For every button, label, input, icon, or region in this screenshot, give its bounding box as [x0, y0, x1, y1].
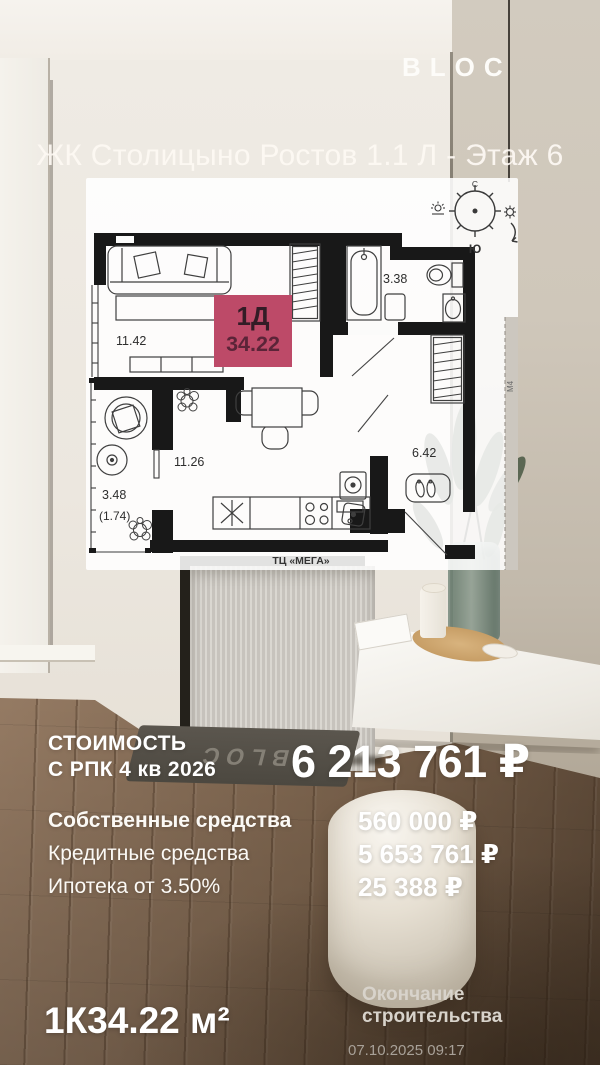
promo-story-canvas: BLOC	[0, 0, 600, 1065]
candle	[420, 586, 446, 638]
finance-row-label: Собственные средства	[48, 809, 291, 833]
floor-plan-drawing: 1Д 34.22 11.42 3.38 11.26 6.42 3.48 (1.7…	[86, 178, 518, 570]
living-area-label: 11.42	[116, 334, 146, 348]
finance-row-label: Кредитные средства	[48, 842, 249, 866]
section-label: М4	[506, 380, 515, 392]
unit-area-text: 34.22 м²	[87, 1000, 230, 1041]
unit-area-label: 34.22	[226, 332, 280, 356]
finance-row-value: 25 388 ₽	[358, 872, 463, 903]
finance-row-own-funds: Собственные средства 560 000 ₽	[48, 806, 568, 838]
hallway-area-label: 6.42	[412, 446, 436, 460]
balcony-area-label: 3.48	[102, 488, 126, 502]
bloc-logo: BLOC	[402, 52, 572, 83]
unit-type-label: 1Д	[237, 301, 270, 331]
bathroom-door-opening	[348, 322, 398, 335]
balcony-reduced-label: (1.74)	[99, 509, 130, 523]
unit-summary: 1К34.22 м²	[44, 1000, 230, 1042]
finance-row-value: 560 000 ₽	[358, 806, 477, 837]
finance-row-credit-funds: Кредитные средства 5 653 761 ₽	[48, 839, 568, 871]
finance-row-value: 5 653 761 ₽	[358, 839, 499, 870]
floor-plan-card: 1Д 34.22 11.42 3.38 11.26 6.42 3.48 (1.7…	[86, 178, 518, 570]
unit-badge: 1Д 34.22	[214, 295, 292, 367]
finance-row-mortgage: Ипотека от 3.50% 25 388 ₽	[48, 872, 568, 904]
price-heading: СТОИМОСТЬ С РПК 4 кв 2026	[48, 731, 216, 783]
bathroom-area-label: 3.38	[383, 272, 407, 286]
timestamp: 07.10.2025 09:17	[348, 1042, 465, 1059]
window-notch	[116, 236, 134, 243]
compass-south-label: Ю	[469, 242, 481, 256]
price-heading-line1: СТОИМОСТЬ	[48, 731, 216, 757]
mall-direction-label: ТЦ «МЕГА»	[272, 555, 329, 567]
compass-icon	[431, 185, 518, 242]
sunset-icon	[431, 202, 445, 215]
sun-icon	[504, 206, 516, 219]
total-price: 6 213 761 ₽	[291, 735, 530, 788]
baseboard	[0, 645, 95, 662]
finance-row-label: Ипотека от 3.50%	[48, 875, 220, 899]
completion-label: Окончание строительства	[362, 984, 600, 1028]
compass-north-label: С	[472, 179, 478, 189]
adjacent-section-strip	[505, 317, 518, 570]
price-heading-line2: С РПК 4 кв 2026	[48, 757, 216, 783]
kitchen-area-label: 11.26	[174, 455, 204, 469]
unit-rooms-label: 1К	[44, 1000, 87, 1041]
page-title: ЖК Столицыно Ростов 1.1 Л - Этаж 6	[0, 139, 600, 173]
